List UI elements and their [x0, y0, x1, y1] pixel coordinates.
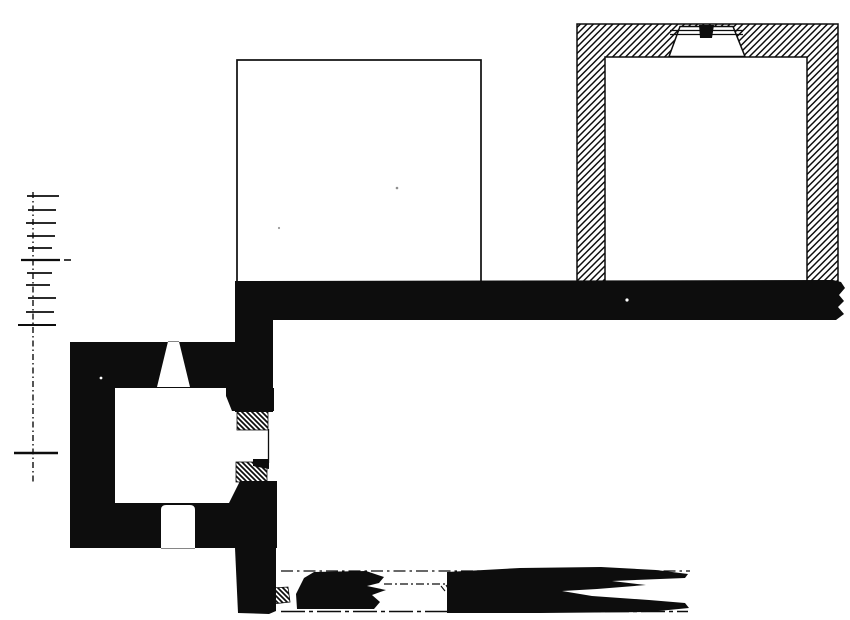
ruin-wall-west	[296, 571, 386, 609]
door-jamb-hatch-upper	[237, 411, 268, 430]
annex-corner-se	[228, 481, 277, 548]
wall-void-speck-2	[100, 377, 103, 380]
floor-plan-drawing	[0, 0, 850, 620]
main-wall	[235, 280, 845, 320]
paper-speck-2	[278, 227, 280, 229]
ruin-hatch-patch	[271, 587, 290, 604]
floor-plan-page	[0, 0, 850, 620]
south-wall-lower	[235, 548, 276, 614]
chamber-door-pillar	[699, 25, 714, 38]
annex-south-wall	[70, 503, 237, 549]
paper-speck-1	[396, 187, 399, 190]
wall-void-speck-1	[625, 298, 628, 301]
annex-corner-ne	[226, 388, 274, 411]
